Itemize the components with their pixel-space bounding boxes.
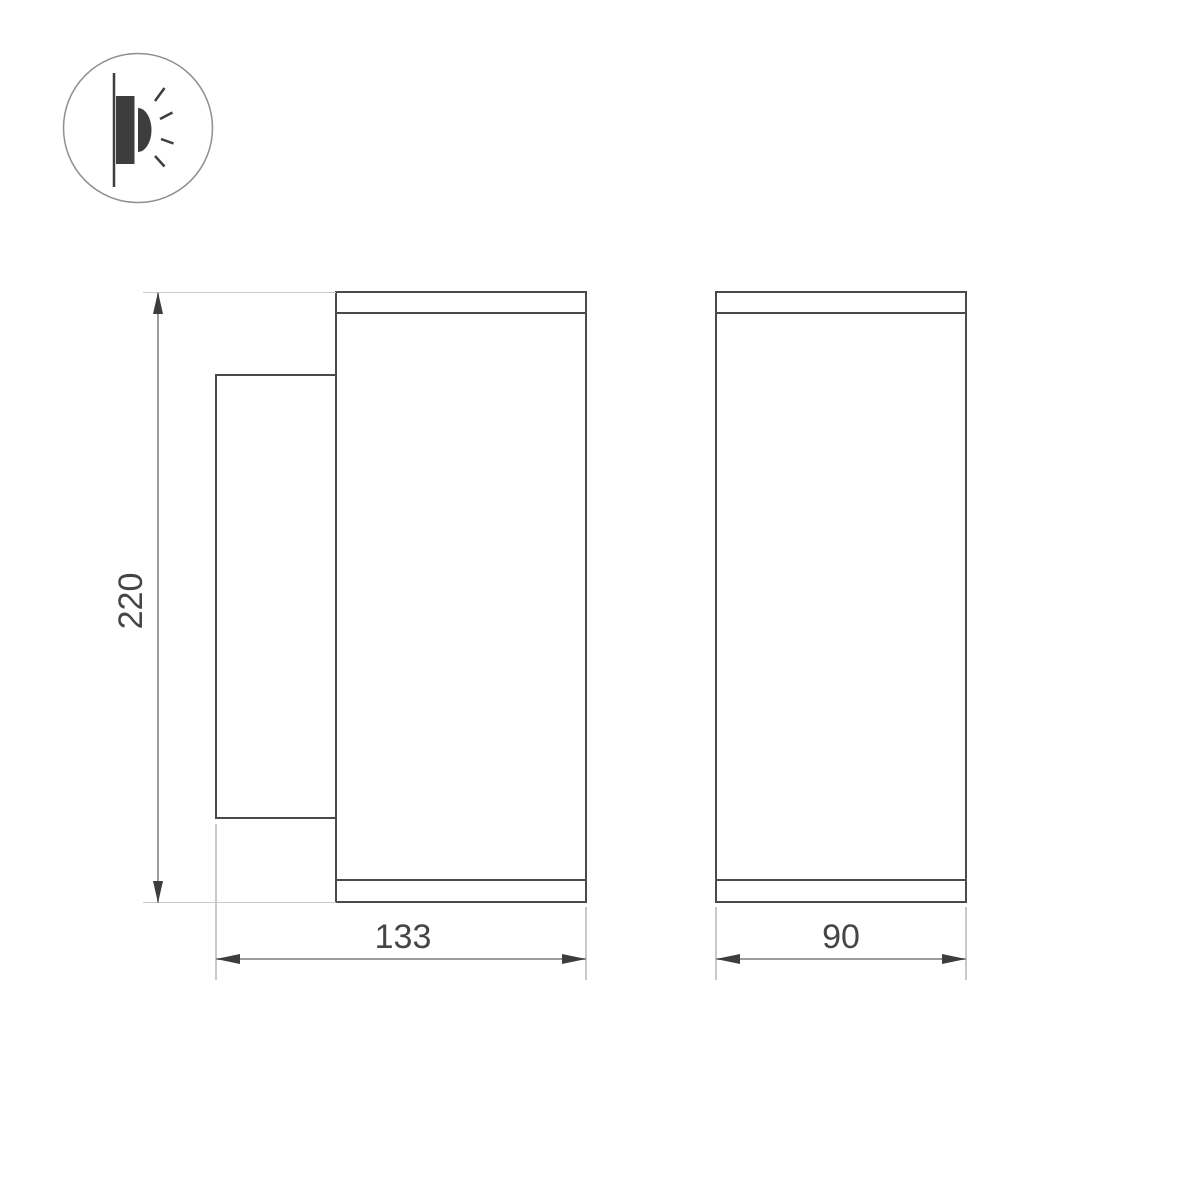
icon-lamp-lens	[138, 108, 152, 152]
side-view-top-cap-line	[336, 312, 586, 314]
icon-light-ray	[155, 156, 165, 167]
depth-dimension-label: 133	[375, 920, 432, 954]
icon-light-ray	[161, 139, 174, 144]
side-view-body	[335, 291, 587, 903]
front-view-body	[715, 291, 967, 903]
icon-light-ray	[160, 113, 173, 120]
height-arrow-up-icon	[153, 292, 163, 314]
height-extension-line-bottom	[143, 902, 336, 904]
side-view-bottom-cap-line	[336, 879, 586, 881]
width-extension-line-left	[715, 907, 717, 980]
height-extension-line-top	[143, 292, 336, 294]
wall-mounted-light-icon-svg	[60, 50, 216, 206]
side-view-mount-plate	[215, 374, 337, 819]
width-dimension-line	[716, 958, 966, 960]
width-extension-line-right	[965, 907, 967, 980]
technical-drawing: 220 133 90	[0, 0, 1200, 1200]
front-view-bottom-cap-line	[716, 879, 966, 881]
icon-lamp-base	[116, 96, 135, 164]
icon-light-ray	[155, 88, 165, 101]
width-dimension-label: 90	[822, 920, 860, 954]
width-arrow-left-icon	[716, 954, 740, 964]
wall-mounted-light-icon	[60, 50, 216, 206]
height-dimension-label: 220	[114, 573, 148, 630]
depth-extension-line-right	[585, 907, 587, 980]
height-arrow-down-icon	[153, 881, 163, 903]
front-view-top-cap-line	[716, 312, 966, 314]
depth-dimension-line	[216, 958, 586, 960]
height-dimension-line	[157, 293, 159, 903]
depth-arrow-left-icon	[216, 954, 240, 964]
depth-arrow-right-icon	[562, 954, 586, 964]
width-arrow-right-icon	[942, 954, 966, 964]
